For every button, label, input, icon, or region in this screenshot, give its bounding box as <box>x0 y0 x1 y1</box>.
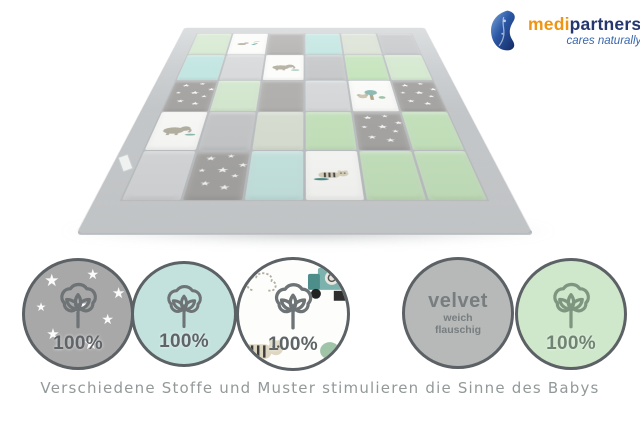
badge-percent-label: 100% <box>239 334 347 356</box>
star-glyph: ★ <box>413 90 425 94</box>
mat-patch-koala <box>349 81 399 111</box>
mat-grid: ★★★★★★★★★★★★★★★★★★★★★★★★★★★★★★★★ <box>122 34 487 200</box>
star-glyph: ★ <box>199 180 212 186</box>
star-glyph: ★ <box>36 301 47 313</box>
star-glyph: ★ <box>174 92 182 95</box>
cotton-flower-icon <box>48 269 107 335</box>
star-glyph: ★ <box>427 95 436 98</box>
mat-patch-mint <box>210 81 260 111</box>
mat-patch-tiger <box>306 151 365 200</box>
star-glyph: ★ <box>380 114 389 118</box>
mat-patch-green <box>413 151 487 200</box>
badge-cotton-animal-print: 100% <box>236 257 350 371</box>
star-glyph: ★ <box>385 138 397 143</box>
star-glyph: ★ <box>391 129 400 133</box>
mat-patch-lightgray <box>305 81 351 111</box>
badge-percent-label: 100% <box>25 333 131 355</box>
star-glyph: ★ <box>367 135 378 140</box>
star-glyph: ★ <box>204 156 217 162</box>
mat-patch-elephant <box>263 55 304 80</box>
star-glyph: ★ <box>230 173 240 178</box>
badge-percent-label: 100% <box>518 333 624 355</box>
star-glyph: ★ <box>175 99 185 103</box>
mat-patch-green <box>401 112 464 150</box>
star-glyph: ★ <box>399 92 407 95</box>
mat-patch-graystars: ★★★★★★★★ <box>392 81 447 111</box>
mat-patch-aqua <box>177 55 226 80</box>
mat-patch-graystars: ★★★★★★★★ <box>162 81 217 111</box>
mat-patch-graystars: ★★★★★★★★ <box>183 151 249 200</box>
logo-tagline: cares naturally <box>567 35 640 48</box>
caption-text: Verschiedene Stoffe und Muster stimulier… <box>0 379 640 397</box>
velvet-label: velvet <box>428 291 488 312</box>
star-glyph: ★ <box>198 82 206 85</box>
star-glyph: ★ <box>376 124 389 130</box>
star-glyph: ★ <box>217 184 230 191</box>
star-glyph: ★ <box>189 90 201 94</box>
mat-patch-graydots <box>258 81 304 111</box>
logo-blob-icon <box>488 8 525 54</box>
mat-patch-gray <box>377 34 421 55</box>
mat-patch-sage <box>341 34 382 55</box>
star-glyph: ★ <box>416 82 424 85</box>
mat-patch-graystars: ★★★★★★★★ <box>353 112 410 150</box>
star-glyph: ★ <box>215 166 230 173</box>
star-glyph: ★ <box>362 116 373 121</box>
badge-percent-label: 100% <box>134 331 234 353</box>
mat-patch-sage <box>252 112 303 150</box>
star-glyph: ★ <box>406 99 416 103</box>
mat-patch-gray <box>305 55 346 80</box>
mat-patch-green <box>345 55 390 80</box>
star-glyph: ★ <box>393 120 404 124</box>
logo-text-medi: medi <box>528 14 570 34</box>
velvet-sublabel-1: weich <box>443 312 472 324</box>
star-glyph: ★ <box>197 168 207 173</box>
badge-cotton-green-stripes: 100% <box>515 258 627 370</box>
badge-cotton-gray-stars: ★★★★★★★★★ 100% <box>22 258 134 370</box>
mat-patch-birds <box>227 34 268 55</box>
mat-patch-mint <box>188 34 232 55</box>
mat-patch-graydots <box>266 34 303 55</box>
patchwork-play-mat: ★★★★★★★★★★★★★★★★★★★★★★★★★★★★★★★★ <box>77 28 532 233</box>
cotton-flower-icon <box>263 269 323 336</box>
star-glyph: ★ <box>360 126 368 130</box>
star-glyph: ★ <box>181 84 191 88</box>
star-glyph: ★ <box>422 101 433 105</box>
star-glyph: ★ <box>207 88 217 92</box>
star-glyph: ★ <box>190 101 201 105</box>
mat-patch-mint <box>384 55 433 80</box>
cotton-flower-icon <box>541 269 600 335</box>
velvet-sublabel-2: flauschig <box>435 324 481 336</box>
velvet-text: velvet weich flauschig <box>405 260 511 366</box>
star-glyph: ★ <box>428 88 438 92</box>
logo-text-partners: partners <box>570 14 640 34</box>
mat-patch-aquadots <box>245 151 304 200</box>
logo-wordmark: medipartners <box>528 15 640 34</box>
star-glyph: ★ <box>237 162 249 168</box>
mat-patch-green <box>306 112 357 150</box>
mat-patch-gray <box>198 112 255 150</box>
badge-velvet: velvet weich flauschig <box>402 257 514 369</box>
star-glyph: ★ <box>226 154 236 159</box>
cotton-flower-icon <box>156 272 212 334</box>
badge-cotton-mint-dots: 100% <box>131 261 237 367</box>
mat-patch-aqua <box>305 34 342 55</box>
mat-patch-elephant <box>145 112 208 150</box>
star-glyph: ★ <box>400 84 410 88</box>
medipartners-logo: medipartners cares naturally <box>488 8 640 54</box>
star-glyph: ★ <box>112 286 125 301</box>
star-glyph: ★ <box>200 95 208 98</box>
mat-patch-lightgray <box>220 55 265 80</box>
